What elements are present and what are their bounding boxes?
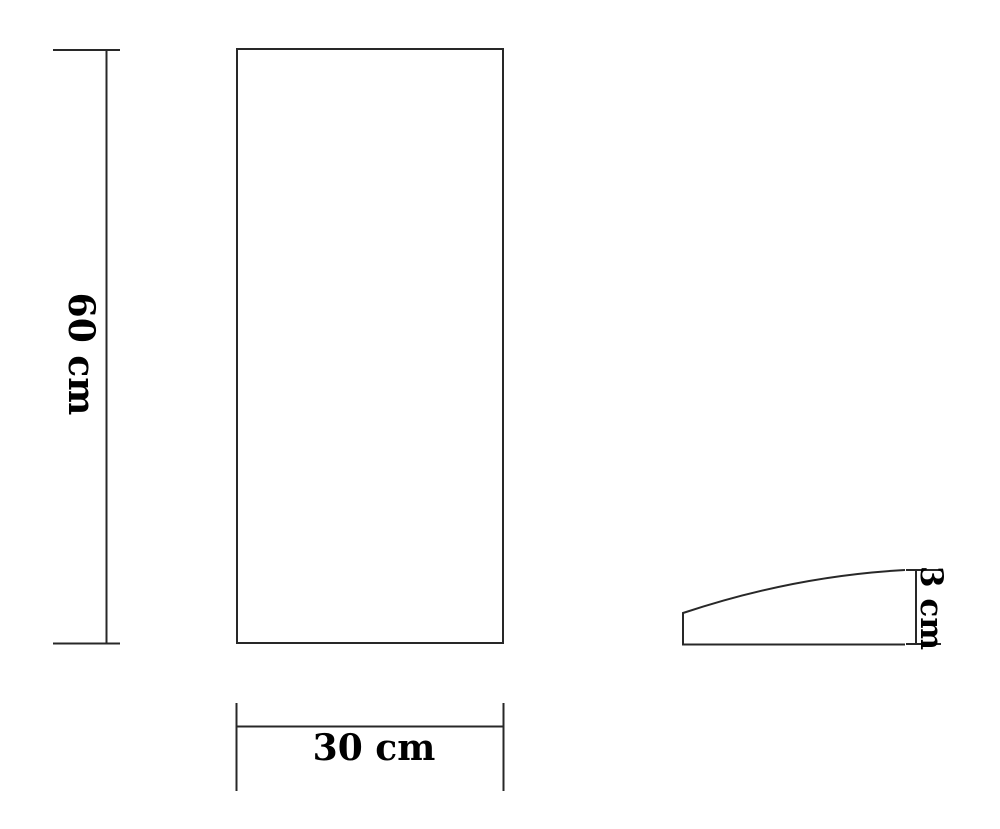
height-dimension: 60 cm: [53, 49, 120, 644]
front-view-outline: [237, 49, 503, 643]
drawing-canvas: 60 cm 30 cm 3 cm: [0, 0, 1000, 829]
height-dimension-label: 60 cm: [60, 293, 102, 416]
side-view: [683, 570, 905, 645]
width-dimension: 30 cm: [237, 703, 504, 791]
side-profile-outline: [683, 570, 905, 645]
front-view: [237, 49, 503, 643]
thickness-dimension: 3 cm: [906, 566, 949, 650]
thickness-dimension-label: 3 cm: [913, 566, 949, 650]
width-dimension-label: 30 cm: [313, 727, 436, 769]
technical-drawing: 60 cm 30 cm 3 cm: [0, 0, 1000, 829]
